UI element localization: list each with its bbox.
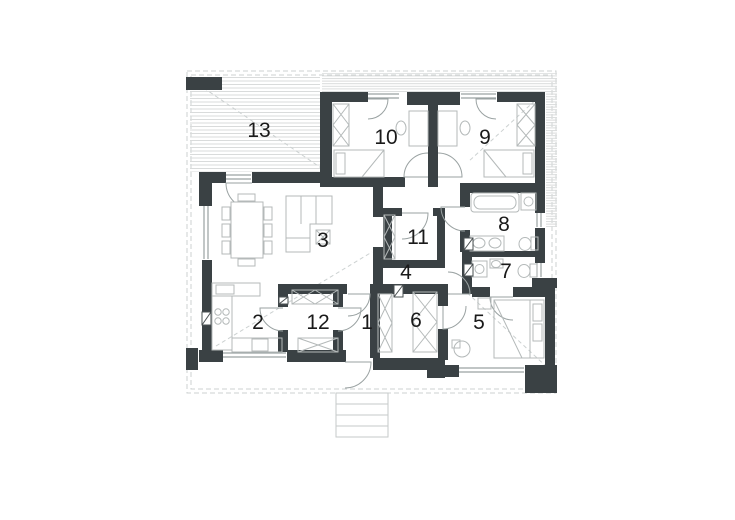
room9-door-arc [438,153,462,177]
window10-casement-arc [368,99,388,119]
room-label-2: 2 [252,311,264,334]
window9-casement-arc [476,99,496,119]
vent-icon [464,264,473,276]
vent-icon [394,285,403,297]
pantry-to-entry-door-arc [338,308,361,331]
dining-table [222,194,272,266]
floor-plan: 12345678910111213 [0,0,735,520]
vent-icon [279,297,288,304]
front-door-arc [345,362,371,388]
closet6-wardrobes [378,292,437,352]
room-label-9: 9 [479,126,491,149]
room10-door-arc [404,153,428,177]
room-label-12: 12 [306,311,329,334]
closet6-door-arc [443,306,466,329]
floor-plan-svg: 12345678910111213 [0,0,735,520]
room-label-5: 5 [473,311,485,334]
room-label-4: 4 [400,261,412,284]
room-label-11: 11 [407,226,429,249]
room-label-6: 6 [410,309,422,332]
vent-icon [202,312,211,325]
room-label-7: 7 [500,260,512,283]
room-label-1: 1 [361,311,373,334]
vent-icon [464,238,473,250]
entrance-steps [336,393,388,437]
room-label-3: 3 [317,229,329,252]
room-label-13: 13 [247,119,270,142]
room-label-8: 8 [498,213,510,236]
room-label-10: 10 [374,126,397,149]
